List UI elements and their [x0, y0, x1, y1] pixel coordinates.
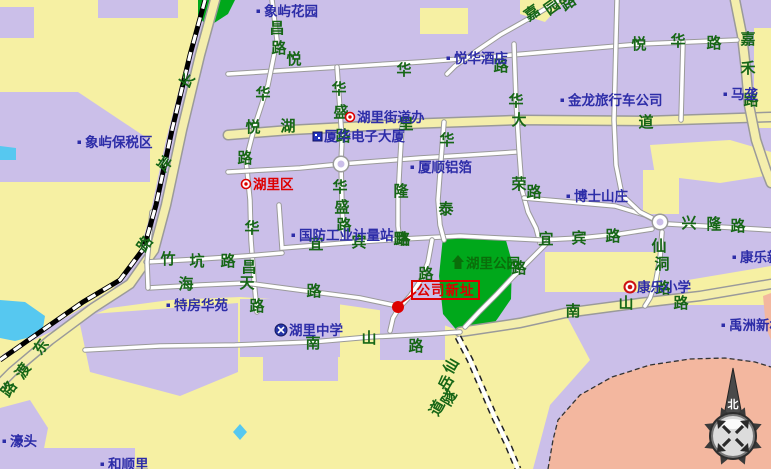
svg-text:厦华电子大厦: 厦华电子大厦 [324, 128, 405, 144]
area-open-kangle-3 [643, 170, 679, 214]
svg-text:竹: 竹 [159, 250, 175, 268]
svg-text:坑: 坑 [189, 252, 204, 270]
svg-text:盛: 盛 [334, 198, 349, 216]
svg-text:象屿保税区: 象屿保税区 [85, 134, 153, 150]
roundabout-2 [652, 214, 669, 231]
svg-text:海: 海 [178, 275, 193, 293]
poi-xiashun-aluminium-foil[interactable]: 厦顺铝箔 [411, 159, 473, 175]
svg-text:特房华苑: 特房华苑 [174, 297, 228, 313]
svg-text:路: 路 [220, 252, 236, 270]
svg-text:华: 华 [331, 80, 346, 98]
svg-text:天: 天 [239, 275, 255, 292]
poi-defense-industry-metrology-station[interactable]: 国防工业计量站 [292, 227, 394, 243]
svg-text:隆: 隆 [706, 215, 722, 233]
svg-text:路: 路 [706, 34, 722, 52]
svg-text:兴: 兴 [681, 215, 696, 232]
svg-text:路: 路 [393, 230, 409, 248]
svg-text:厦顺铝箔: 厦顺铝箔 [418, 159, 472, 175]
svg-text:泰: 泰 [437, 200, 454, 218]
poi-yuehua-hotel[interactable]: 悦华酒店 [447, 50, 509, 66]
svg-text:南: 南 [565, 302, 580, 320]
svg-text:洞: 洞 [654, 256, 669, 273]
poi-boshi-shanzhuang[interactable]: 博士山庄 [567, 188, 629, 204]
svg-text:宾: 宾 [571, 229, 586, 247]
svg-text:华: 华 [255, 85, 270, 103]
svg-text:康乐小学: 康乐小学 [637, 279, 691, 295]
svg-text:华: 华 [439, 131, 454, 149]
svg-text:大: 大 [511, 111, 526, 129]
svg-text:路: 路 [271, 39, 287, 57]
poi-xiahua-electronics-building[interactable]: 厦华电子大厦 [313, 128, 405, 144]
svg-text:道: 道 [638, 113, 653, 131]
svg-text:华: 华 [670, 32, 685, 50]
svg-text:湖: 湖 [280, 118, 295, 135]
poi-yuzhou-new-village[interactable]: 禹洲新村 [722, 317, 771, 333]
road-vertical-683 [681, 42, 683, 120]
svg-text:禹洲新村: 禹洲新村 [729, 317, 771, 333]
area-urban-tl-1 [0, 7, 34, 38]
map-svg: 悦湖里大道悦华路悦华路嘉园路嘉禾路昌路华路华昌路长岸路东渡路竹坑路海天路华盛路华… [0, 0, 771, 469]
svg-text:路: 路 [526, 183, 542, 201]
svg-text:嘉: 嘉 [739, 30, 755, 48]
svg-text:昌: 昌 [269, 20, 284, 37]
svg-text:华: 华 [244, 219, 259, 237]
poi-xiangyu-garden[interactable]: 象屿花园 [257, 3, 319, 19]
svg-text:华: 华 [508, 92, 523, 110]
svg-text:仙: 仙 [651, 237, 666, 255]
svg-text:金龙旅行车公司: 金龙旅行车公司 [567, 92, 663, 108]
svg-text:濠头: 濠头 [10, 433, 37, 449]
svg-text:悦: 悦 [631, 35, 646, 53]
svg-text:国防工业计量站: 国防工业计量站 [299, 227, 394, 243]
svg-text:公司新址: 公司新址 [417, 282, 475, 298]
svg-text:湖里街道办: 湖里街道办 [357, 109, 425, 125]
poi-huli-street-office[interactable]: 湖里街道办 [346, 109, 425, 125]
map-canvas[interactable]: 悦湖里大道悦华路悦华路嘉园路嘉禾路昌路华路华昌路长岸路东渡路竹坑路海天路华盛路华… [0, 0, 771, 469]
svg-text:博士山庄: 博士山庄 [574, 188, 628, 204]
svg-text:悦: 悦 [286, 50, 301, 68]
svg-text:路: 路 [408, 337, 424, 355]
svg-text:路: 路 [306, 282, 322, 300]
area-urban-south-1 [263, 357, 338, 381]
svg-text:禾: 禾 [740, 60, 756, 77]
marker-dot[interactable] [392, 301, 404, 313]
svg-text:象屿花园: 象屿花园 [264, 3, 318, 19]
area-urban-tl-2 [98, 0, 178, 18]
svg-text:湖里公园: 湖里公园 [466, 256, 520, 271]
svg-text:华: 华 [332, 178, 347, 196]
svg-text:湖里中学: 湖里中学 [289, 322, 343, 338]
poi-xiangyu-bonded-zone[interactable]: 象屿保税区 [78, 134, 153, 150]
roundabout-1 [333, 156, 350, 173]
svg-text:山: 山 [361, 330, 376, 347]
svg-text:悦: 悦 [245, 118, 260, 136]
svg-text:隆: 隆 [393, 182, 409, 200]
poi-heshunli[interactable]: 和顺里 [101, 457, 149, 469]
area-open-topright-1 [420, 8, 468, 34]
poi-kinglong-bus-company[interactable]: 金龙旅行车公司 [561, 92, 663, 108]
svg-text:昌: 昌 [241, 259, 256, 276]
svg-text:路: 路 [605, 227, 621, 245]
svg-text:悦华酒店: 悦华酒店 [454, 50, 508, 66]
poi-tefang-huayuan[interactable]: 特房华苑 [167, 297, 229, 313]
area-water-edge-west [0, 146, 16, 160]
svg-text:路: 路 [673, 294, 689, 312]
svg-text:华: 华 [396, 61, 411, 79]
road-label-竹坑路: 竹坑路 [159, 250, 236, 270]
svg-text:康乐新村: 康乐新村 [740, 249, 771, 265]
svg-text:马垄: 马垄 [731, 86, 759, 102]
svg-text:和顺里: 和顺里 [108, 457, 149, 469]
svg-text:路: 路 [237, 149, 253, 167]
compass-north-label: 北 [728, 397, 739, 411]
svg-text:路: 路 [730, 217, 746, 235]
svg-text:宜: 宜 [538, 230, 553, 248]
svg-text:路: 路 [249, 297, 265, 315]
svg-text:山: 山 [618, 295, 633, 312]
svg-text:荣: 荣 [510, 175, 527, 193]
svg-text:湖里区: 湖里区 [253, 177, 294, 192]
